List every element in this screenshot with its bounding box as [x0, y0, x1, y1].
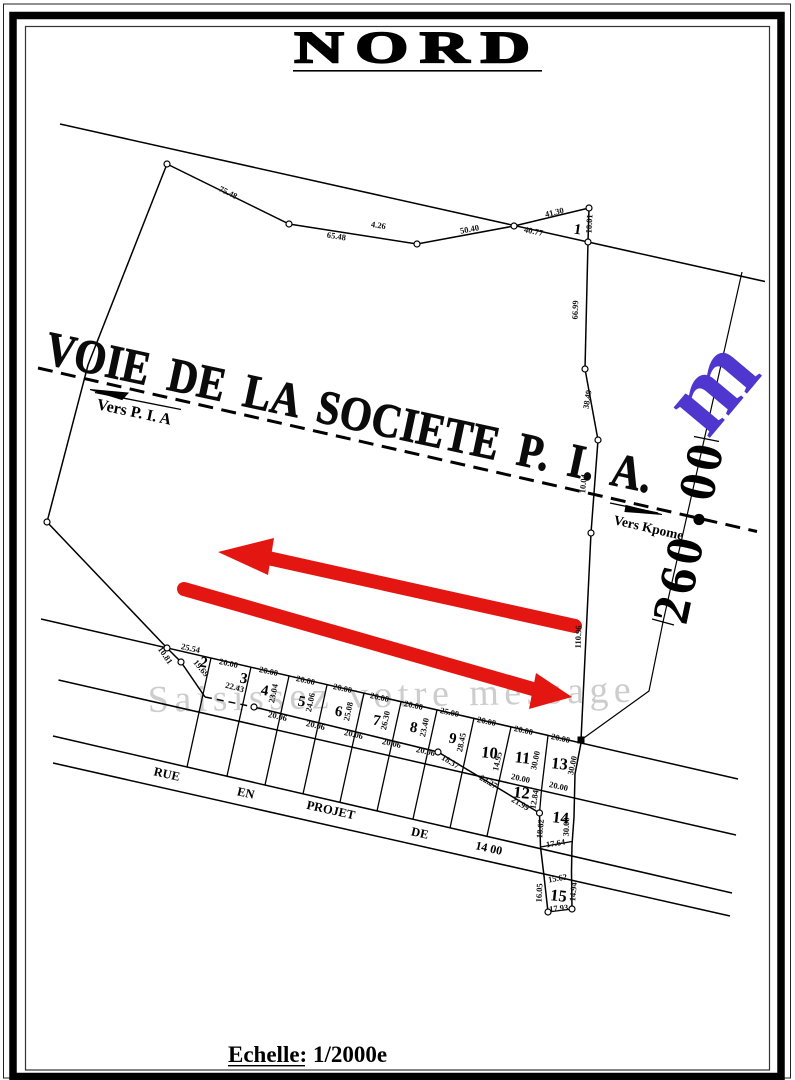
svg-text:10.04: 10.04 [577, 473, 589, 494]
svg-text:66.99: 66.99 [570, 300, 581, 319]
svg-text:14.94: 14.94 [567, 881, 579, 902]
svg-text:10.01: 10.01 [584, 214, 595, 234]
svg-text:NORD: NORD [294, 24, 541, 72]
svg-text:11: 11 [514, 747, 531, 768]
svg-text:14: 14 [551, 807, 569, 828]
svg-text:18.62: 18.62 [534, 819, 546, 839]
svg-text:15: 15 [549, 885, 567, 906]
svg-text:10: 10 [480, 742, 498, 763]
svg-text:13: 13 [550, 753, 568, 774]
svg-text:12: 12 [512, 782, 530, 803]
svg-text:16.05: 16.05 [534, 883, 545, 903]
svg-text:110.96: 110.96 [573, 625, 584, 648]
svg-text:Echelle: 1/2000e: Echelle: 1/2000e [228, 1042, 387, 1067]
